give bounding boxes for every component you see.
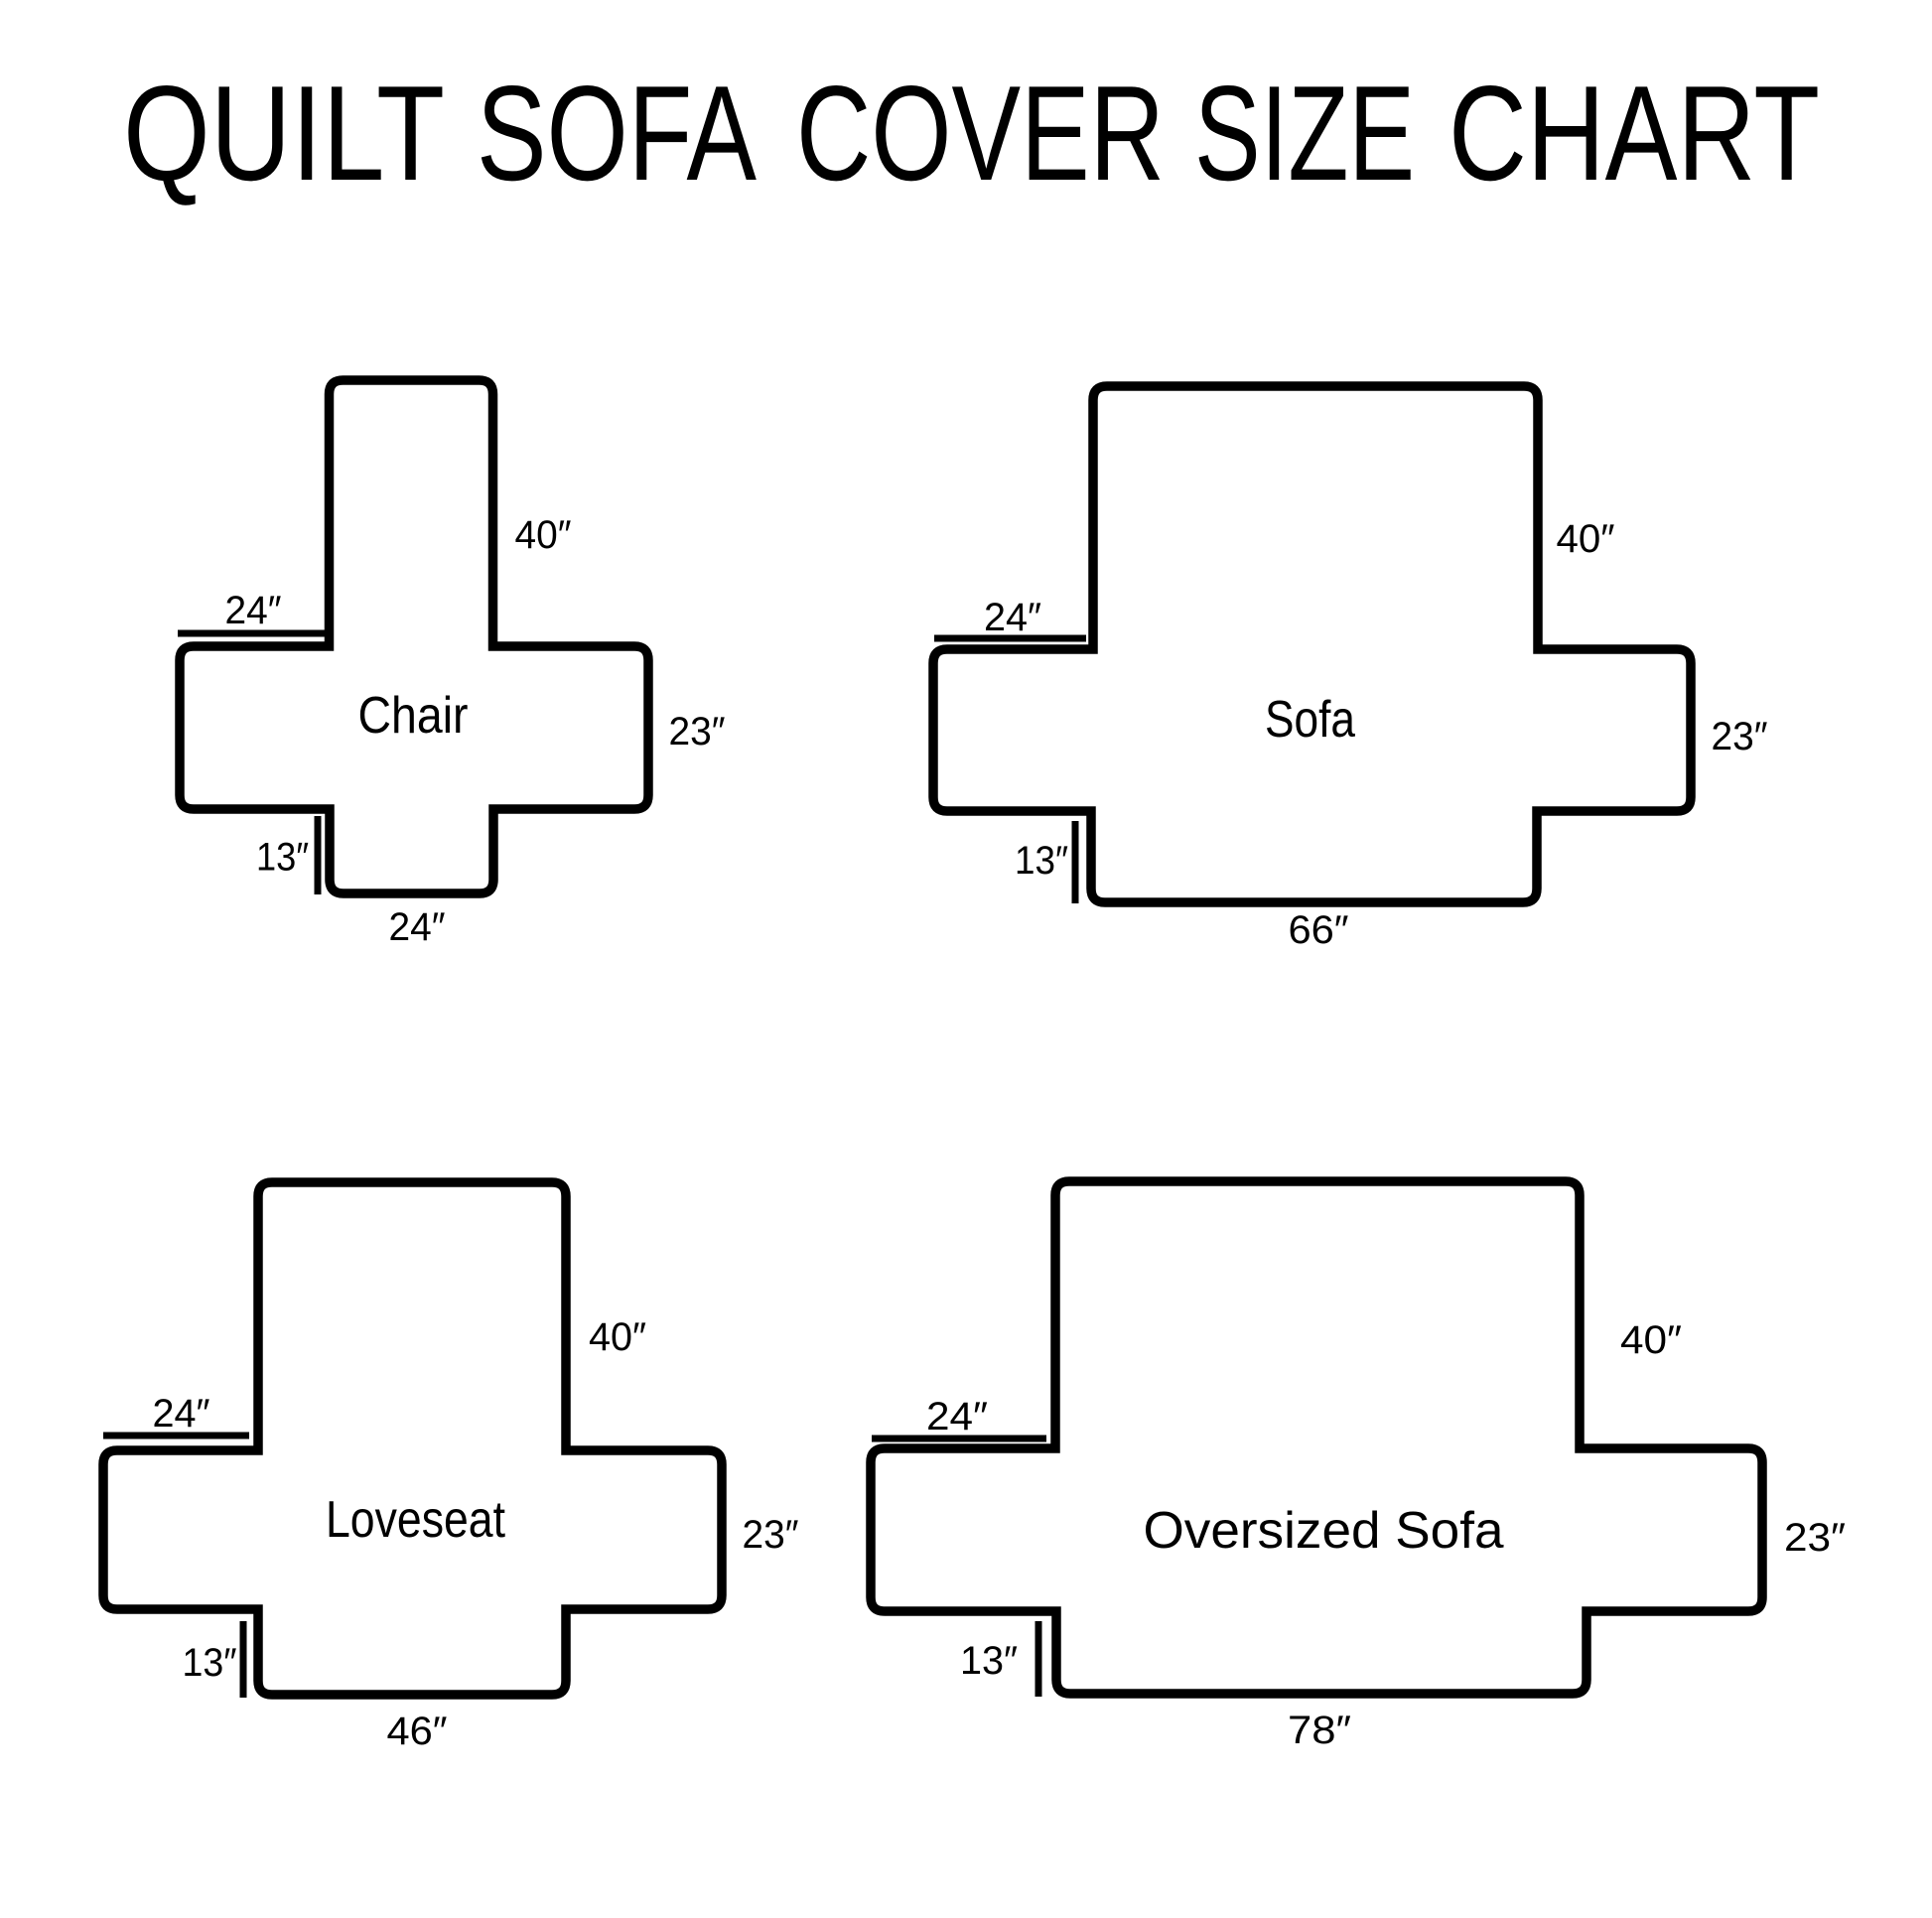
svg-text:46″: 46″ (387, 1710, 448, 1753)
svg-text:13″: 13″ (256, 836, 309, 880)
svg-text:24″: 24″ (153, 1392, 210, 1436)
svg-text:Sofa: Sofa (1265, 691, 1355, 749)
svg-text:24″: 24″ (389, 905, 446, 949)
svg-text:23″: 23″ (743, 1513, 799, 1557)
svg-text:40″: 40″ (1557, 517, 1615, 561)
svg-text:24″: 24″ (926, 1395, 988, 1438)
svg-text:23″: 23″ (1712, 715, 1768, 758)
svg-text:66″: 66″ (1289, 908, 1349, 952)
svg-text:Oversized Sofa: Oversized Sofa (1144, 1502, 1504, 1560)
svg-text:78″: 78″ (1288, 1709, 1351, 1752)
svg-text:40″: 40″ (589, 1315, 646, 1359)
svg-text:40″: 40″ (515, 513, 572, 557)
svg-text:24″: 24″ (984, 596, 1041, 639)
svg-text:23″: 23″ (669, 710, 726, 753)
svg-text:40″: 40″ (1620, 1318, 1682, 1362)
svg-text:23″: 23″ (1784, 1516, 1846, 1560)
svg-text:13″: 13″ (183, 1641, 237, 1685)
svg-text:Chair: Chair (358, 687, 469, 745)
svg-text:24″: 24″ (225, 589, 282, 632)
svg-text:13″: 13″ (960, 1639, 1018, 1683)
svg-text:QUILTSOFACOVERSIZECHART: QUILTSOFACOVERSIZECHART (123, 58, 1820, 208)
svg-text:13″: 13″ (1015, 839, 1068, 883)
svg-text:Loveseat: Loveseat (326, 1491, 505, 1549)
